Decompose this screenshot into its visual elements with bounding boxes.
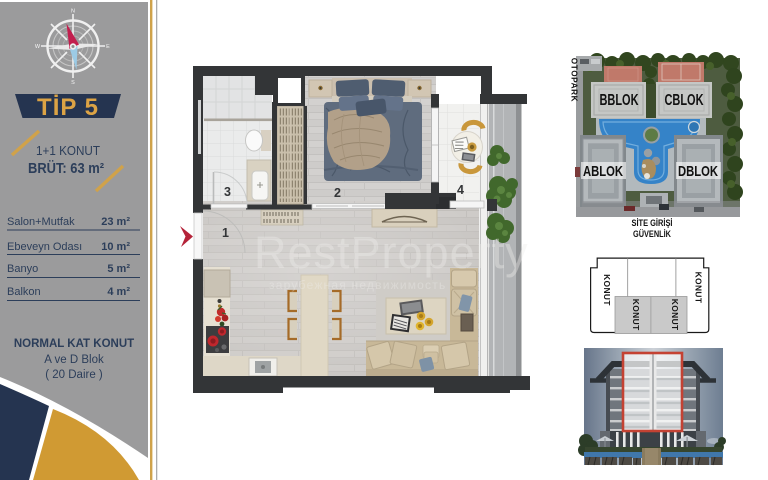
svg-text:23 m²: 23 m² <box>101 216 130 228</box>
svg-text:SİTE GİRİŞİ: SİTE GİRİŞİ <box>632 218 673 228</box>
svg-text:RestProperty: RestProperty <box>254 227 529 278</box>
svg-text:KONUT: KONUT <box>694 272 704 304</box>
svg-text:10 m²: 10 m² <box>101 241 130 253</box>
svg-text:2: 2 <box>334 186 341 200</box>
svg-text:GÜVENLİK: GÜVENLİK <box>633 229 672 239</box>
svg-text:KONUT: KONUT <box>631 299 641 331</box>
svg-text:OTOPARK: OTOPARK <box>570 58 579 102</box>
svg-text:E: E <box>106 44 110 50</box>
svg-text:4: 4 <box>457 183 464 197</box>
svg-text:4 m²: 4 m² <box>107 286 130 298</box>
svg-text:NORMAL KAT KONUT: NORMAL KAT KONUT <box>14 338 134 350</box>
svg-text:A ve D Blok: A ve D Blok <box>44 354 104 366</box>
svg-text:KONUT: KONUT <box>670 299 680 331</box>
svg-text:CBLOK: CBLOK <box>665 92 704 109</box>
svg-text:S: S <box>71 80 75 86</box>
svg-text:W: W <box>35 44 41 50</box>
svg-text:Banyo: Banyo <box>7 263 38 275</box>
svg-text:3: 3 <box>224 185 231 199</box>
svg-text:Ebeveyn Odası: Ebeveyn Odası <box>7 241 82 253</box>
svg-text:DBLOK: DBLOK <box>678 163 718 180</box>
svg-text:1+1 KONUT: 1+1 KONUT <box>36 143 100 158</box>
svg-text:BBLOK: BBLOK <box>600 92 639 109</box>
svg-text:5 m²: 5 m² <box>107 263 130 275</box>
svg-text:BRÜT: 63 m²: BRÜT: 63 m² <box>28 160 104 177</box>
svg-text:TİP 5: TİP 5 <box>37 94 99 121</box>
svg-text:1: 1 <box>222 226 229 240</box>
svg-text:ABLOK: ABLOK <box>583 163 623 180</box>
svg-text:N: N <box>71 9 75 15</box>
svg-text:зарубежная недвижимость: зарубежная недвижимость <box>269 278 446 292</box>
svg-text:Balkon: Balkon <box>7 286 41 298</box>
svg-text:KONUT: KONUT <box>602 274 612 306</box>
svg-text:Salon+Mutfak: Salon+Mutfak <box>7 216 75 228</box>
svg-text:( 20 Daire ): ( 20 Daire ) <box>45 369 103 381</box>
